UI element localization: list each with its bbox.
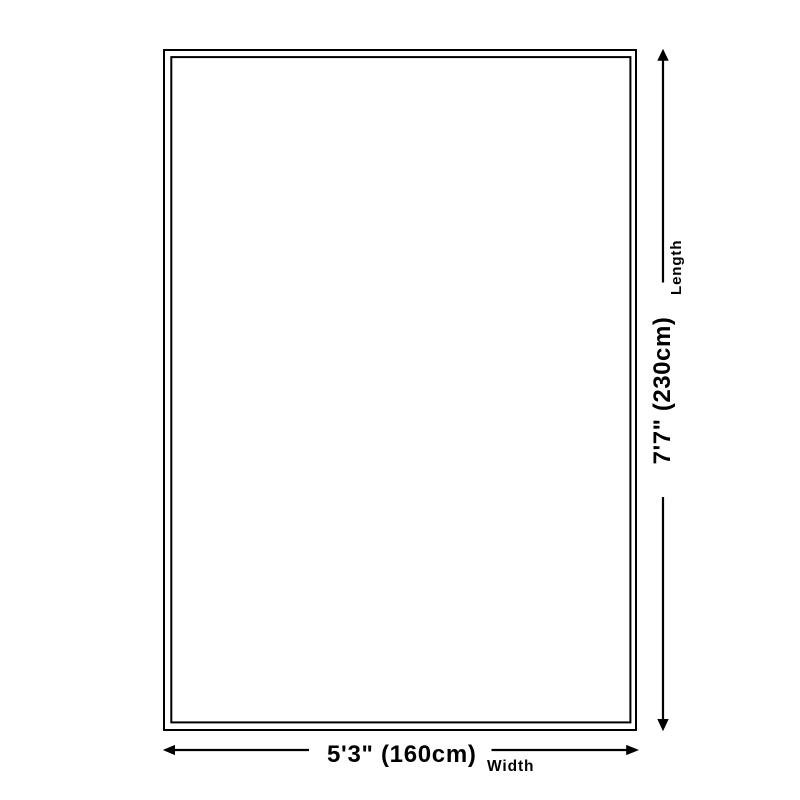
svg-text:7'7" (230cm): 7'7" (230cm) [649,317,676,465]
svg-text:Length: Length [668,240,685,295]
svg-text:Width: Width [487,758,534,775]
svg-text:5'3" (160cm): 5'3" (160cm) [327,741,477,768]
